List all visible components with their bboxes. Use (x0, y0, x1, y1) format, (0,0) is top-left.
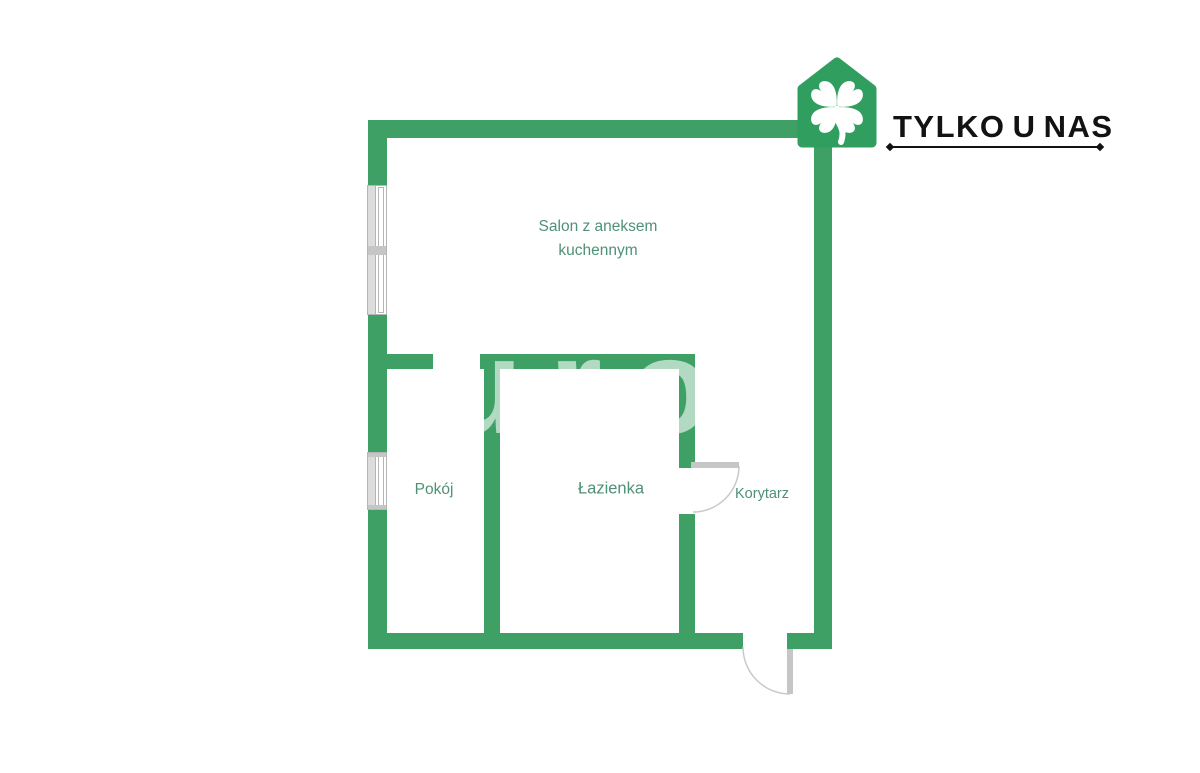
window-sash (378, 454, 384, 508)
window-frame (368, 453, 376, 509)
window-mullion (368, 246, 386, 255)
bathroom-door-swing-arc (693, 466, 739, 512)
underline-diamond-left (886, 143, 894, 151)
bathroom-door-leaf (691, 462, 739, 468)
room-label-korytarz: Korytarz (735, 486, 789, 502)
floor-plan-page: urov Salon z aneksem kuchennym Pokój Łaz… (0, 0, 1200, 773)
wall-left-lower (368, 510, 387, 649)
salon-window-icon (367, 185, 387, 315)
window-cap (368, 505, 386, 509)
wall-lazienka-right-lower (679, 514, 695, 633)
brand-logo (797, 57, 877, 148)
wall-left-middle (368, 315, 387, 452)
room-label-pokoj: Pokój (415, 481, 454, 499)
watermark: urov (440, 318, 839, 454)
wall-bottom-left (368, 633, 743, 649)
entry-door-swing-arc (743, 647, 790, 694)
house-clover-icon (797, 57, 877, 148)
room-label-lazienka: Łazienka (578, 480, 644, 499)
brand-name: TYLKO U NAS (893, 111, 1114, 142)
room-label-salon: Salon z aneksem kuchennym (512, 215, 684, 263)
pokoj-window-icon (367, 452, 387, 510)
underline-diamond-right (1096, 143, 1104, 151)
entry-door-leaf (787, 649, 793, 694)
wall-salon-pokoj (387, 354, 433, 369)
wall-bottom-right (787, 633, 832, 649)
brand-underline (890, 146, 1100, 148)
wall-left-upper (368, 120, 387, 185)
wall-top (368, 120, 832, 138)
window-cap (368, 453, 386, 457)
